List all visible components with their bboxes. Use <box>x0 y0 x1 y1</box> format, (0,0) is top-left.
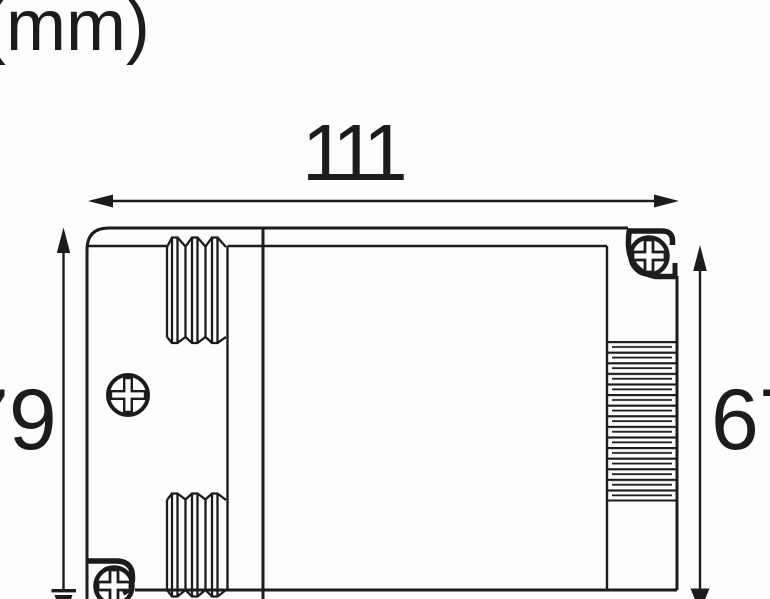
dimension-width-label: 111 <box>302 113 400 193</box>
screw-mount-bottom-left <box>87 561 133 599</box>
unit-label: (mm) <box>0 0 150 62</box>
device-body-outline <box>87 228 677 599</box>
extension-tick <box>52 589 77 592</box>
technical-drawing-svg <box>0 0 770 599</box>
dimension-height-left-label: 79 <box>0 377 57 463</box>
arrow-up-icon <box>693 245 707 271</box>
arrow-left-icon <box>88 195 113 208</box>
arrow-up-icon <box>57 228 70 254</box>
phillips-screw-icon <box>108 375 148 415</box>
dimension-height-right <box>691 245 710 599</box>
strain-relief-ribs-top <box>167 238 226 344</box>
phillips-screw-icon <box>96 568 133 599</box>
arrow-right-icon <box>654 195 679 208</box>
heatsink-ribs <box>607 341 677 501</box>
strain-relief-ribs-bottom <box>167 494 226 597</box>
arrow-down-icon <box>691 589 710 599</box>
drawing-canvas: (mm) 111 79 67 <box>0 0 770 599</box>
phillips-screw-icon <box>631 238 668 275</box>
body-inner-rails <box>228 246 608 590</box>
screw-mount-top-right <box>628 229 677 277</box>
arrow-down-icon <box>55 595 73 599</box>
dimension-height-right-label: 67 <box>711 377 770 463</box>
